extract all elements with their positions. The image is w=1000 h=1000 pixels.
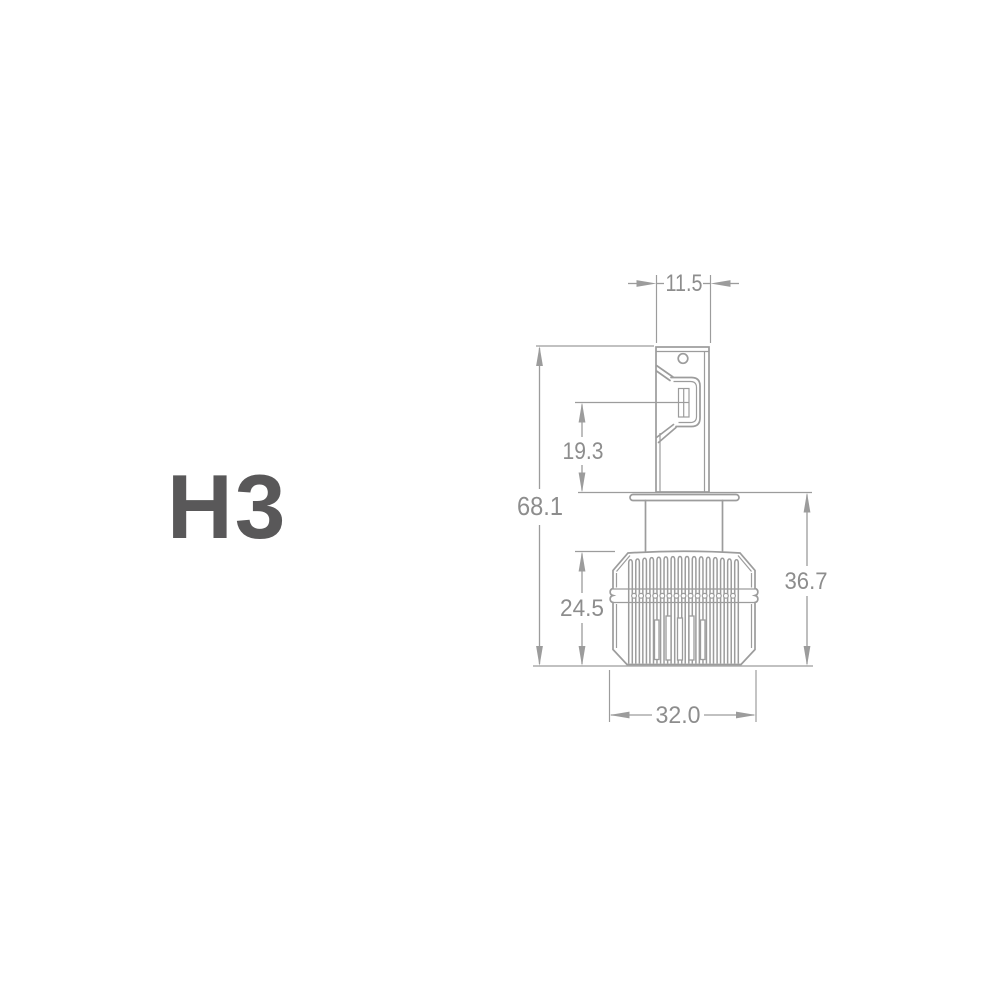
dimension-heatsink-height: 24.5: [560, 552, 604, 667]
connector-terminal-slot: [679, 389, 690, 418]
extension-lines: [533, 275, 813, 722]
dim-label-overall-height: 68.1: [517, 491, 563, 521]
dimension-tab-width: 11.5: [628, 270, 739, 297]
dimension-flange-to-base: 36.7: [785, 493, 828, 667]
dim-label-heatsink-height: 24.5: [560, 595, 604, 622]
heatsink-waist-beads: [632, 593, 736, 598]
dimension-electrode-to-flange: 19.3: [563, 403, 604, 493]
dimension-drawing: 11.5 68.1 19.3 24.5: [0, 0, 1000, 1000]
page: H3: [0, 0, 1000, 1000]
dim-label-electrode-to-flange: 19.3: [563, 438, 604, 465]
bulb-connector-tab: [656, 347, 709, 492]
connector-hole: [678, 354, 688, 364]
bulb-neck: [646, 501, 723, 552]
dimension-heatsink-width: 32.0: [610, 702, 757, 729]
heatsink-vent-slots: [655, 616, 706, 660]
connector-tab-upper-bend: [657, 366, 674, 381]
bulb-flange: [630, 495, 739, 501]
dim-label-flange-to-base: 36.7: [785, 568, 828, 595]
dim-label-heatsink-width: 32.0: [656, 702, 701, 729]
heatsink-fins: [629, 557, 739, 664]
dim-label-tab-width: 11.5: [666, 270, 703, 297]
dimension-overall-height: 68.1: [517, 346, 563, 666]
